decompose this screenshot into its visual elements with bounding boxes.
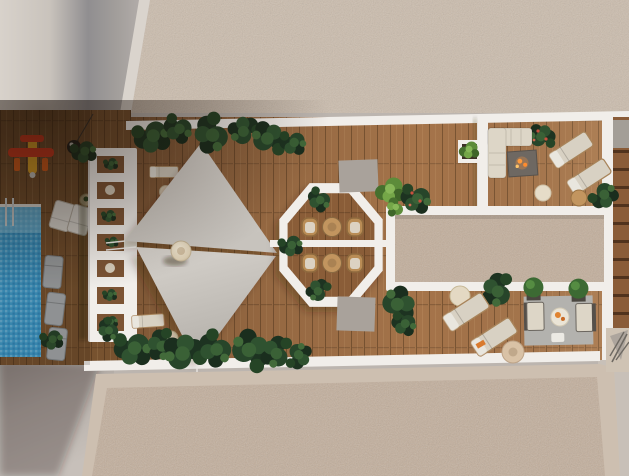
lower-gravel-texture	[92, 377, 605, 476]
rooftop-unit	[613, 120, 629, 148]
flower	[410, 191, 413, 194]
round-side-table	[535, 185, 551, 201]
wicker-chair	[347, 218, 363, 236]
deck-lounger	[131, 314, 164, 329]
pouf-center	[509, 348, 518, 357]
round-side-table	[571, 190, 587, 206]
concrete-block	[338, 159, 378, 192]
flower	[409, 204, 412, 207]
skylight-inner-shadow	[395, 215, 604, 219]
flower	[418, 199, 421, 202]
lounge-sofa	[576, 303, 593, 331]
upper-gravel-texture	[131, 0, 629, 113]
wicker-chair	[347, 254, 363, 272]
flower	[536, 129, 539, 132]
stairs-wood	[613, 117, 629, 360]
rooftop-terrace-render	[0, 0, 629, 476]
divider-wall	[477, 116, 488, 215]
pool-zone-shade	[0, 110, 90, 365]
lounge-sofa	[527, 302, 544, 330]
skylight-gravel-texture	[395, 215, 604, 282]
flower	[533, 139, 536, 142]
fire-pit-table	[507, 150, 538, 177]
floor-cushion	[551, 333, 564, 342]
concrete-block	[336, 296, 375, 331]
divider-wall-shadow	[473, 118, 477, 213]
flower	[544, 137, 547, 140]
sofa-frame	[592, 303, 596, 331]
